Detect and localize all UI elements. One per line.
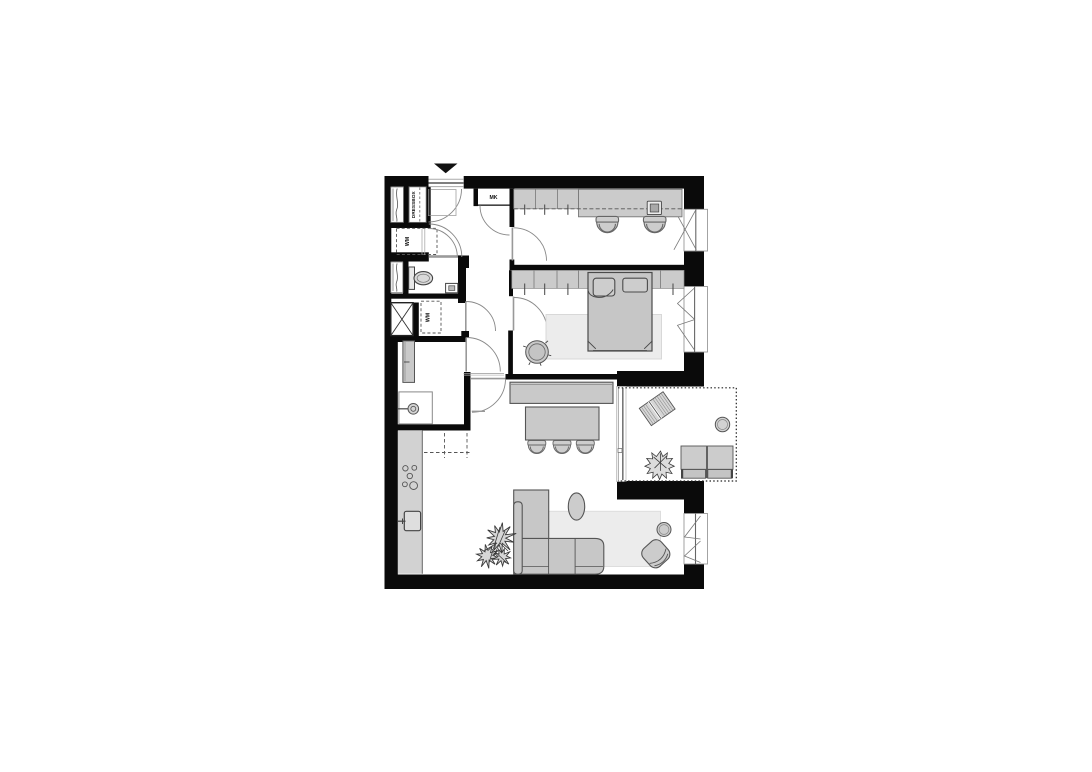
svg-text:DRESSBOX: DRESSBOX — [411, 191, 417, 219]
svg-text:MK: MK — [489, 195, 497, 201]
svg-text:WM: WM — [405, 237, 411, 246]
svg-text:WM: WM — [426, 313, 432, 322]
